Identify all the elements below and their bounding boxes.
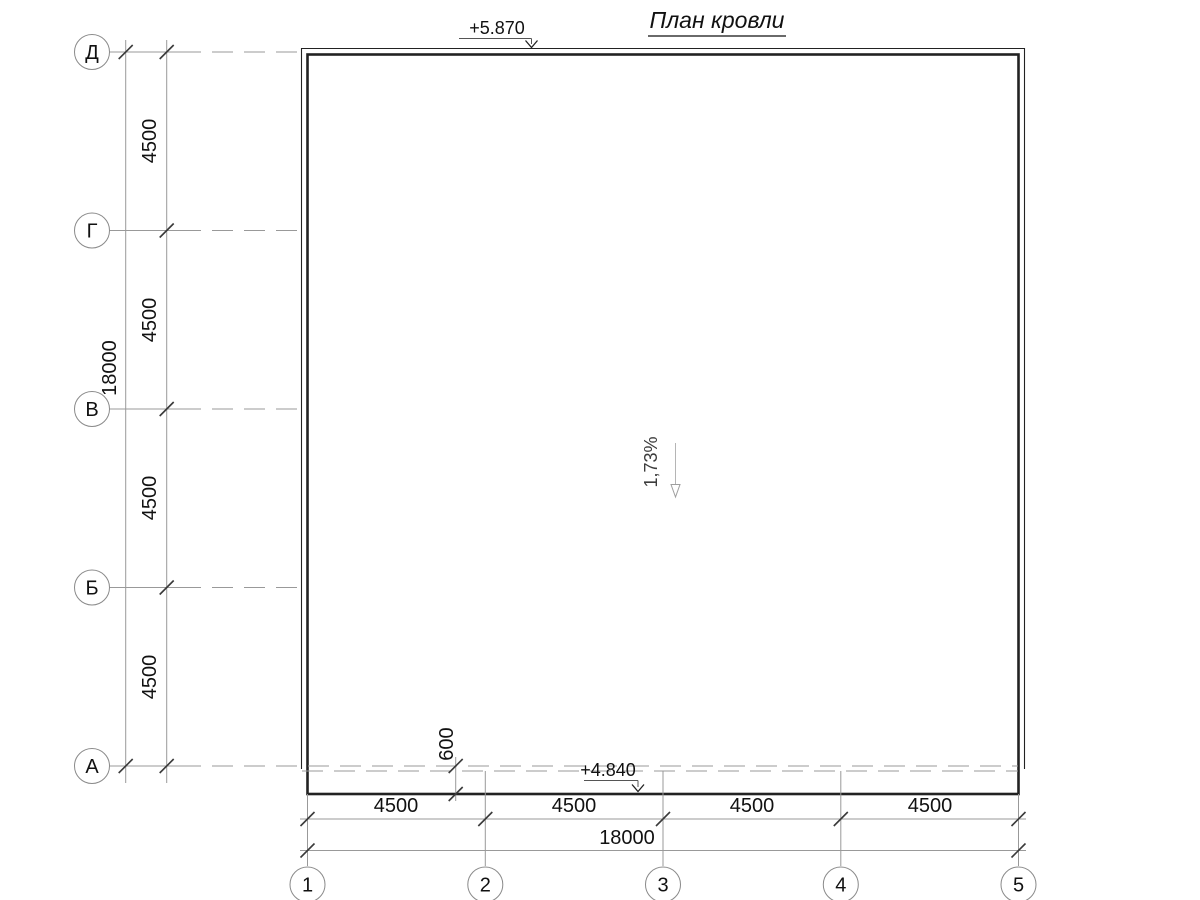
left-dim-label-1: 4500 (139, 298, 161, 343)
left-dim-label-0: 4500 (139, 119, 161, 164)
bottom-dim-label-2: 4500 (730, 795, 775, 817)
roof-inner-edge (308, 55, 1019, 795)
slope-label: 1,73% (641, 436, 661, 487)
left-total-dim-label: 18000 (99, 340, 121, 396)
roof-plan-drawing: План кровли Д Г В Б А (0, 0, 1200, 900)
left-dimensions: 4500 4500 4500 4500 18000 (99, 40, 174, 783)
ridge-elevation-label: +5.870 (469, 18, 525, 38)
col-axis-label-2: 3 (657, 875, 668, 897)
col-axis-label-1: 2 (480, 875, 491, 897)
roof-outer-edge (302, 49, 1025, 770)
col-axis-label-0: 1 (302, 875, 313, 897)
col-axis-label-4: 5 (1013, 875, 1024, 897)
elevation-mark-ridge: +5.870 (459, 18, 538, 48)
row-axis-label-0: Д (85, 42, 99, 64)
row-axis-label-4: А (85, 756, 99, 778)
elevation-mark-eave: +4.840 (580, 760, 644, 792)
row-axis-label-2: В (85, 399, 98, 421)
eave-dim-label: 600 (436, 727, 458, 760)
col-axis-label-3: 4 (835, 875, 846, 897)
bottom-dim-label-0: 4500 (374, 795, 419, 817)
title-block: План кровли (648, 7, 786, 36)
slope-arrow-icon (671, 485, 680, 498)
bottom-dimensions: 4500 4500 4500 4500 18000 1 2 3 4 5 (290, 771, 1036, 900)
left-dim-label-2: 4500 (139, 476, 161, 521)
bottom-total-dim-label: 18000 (599, 827, 655, 849)
roof-outline (302, 49, 1025, 795)
left-dim-label-3: 4500 (139, 655, 161, 700)
eave-overhang-dimension: 600 (436, 727, 463, 801)
row-axis-label-1: Г (87, 221, 98, 243)
slope-annotation: 1,73% (641, 436, 680, 497)
row-axis-label-3: Б (85, 578, 98, 600)
bottom-dim-label-1: 4500 (552, 795, 597, 817)
page-title: План кровли (650, 7, 785, 33)
eave-elevation-label: +4.840 (580, 760, 636, 780)
bottom-dim-label-3: 4500 (908, 795, 953, 817)
row-axes: Д Г В Б А (75, 35, 1019, 784)
